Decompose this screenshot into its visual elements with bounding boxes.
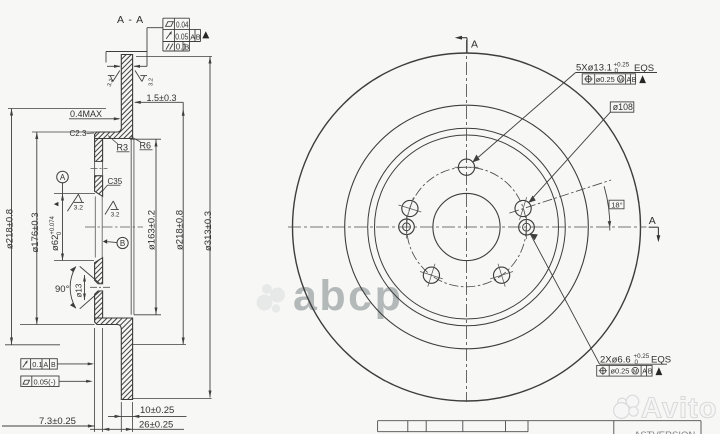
svg-text:A: A	[60, 173, 66, 182]
svg-text:26±0.25: 26±0.25	[139, 419, 173, 430]
svg-text:A: A	[649, 215, 656, 227]
svg-text:R3: R3	[117, 143, 129, 153]
svg-text:abcp: abcp	[293, 272, 403, 320]
svg-text:ø0.25: ø0.25	[596, 75, 615, 84]
svg-text:A: A	[642, 369, 647, 376]
svg-text:ASTVERSION: ASTVERSION	[634, 430, 695, 434]
svg-text:ø13: ø13	[75, 283, 84, 297]
svg-text:3.2: 3.2	[111, 212, 120, 219]
svg-text:ø0.25: ø0.25	[611, 367, 630, 376]
svg-text:B: B	[196, 32, 201, 41]
svg-text:0: 0	[635, 359, 639, 366]
svg-text:5Xø13.1: 5Xø13.1	[576, 63, 612, 74]
svg-text:ø163±0.2: ø163±0.2	[147, 210, 158, 250]
svg-text:0.04: 0.04	[176, 20, 189, 29]
svg-text:ø218±0.8: ø218±0.8	[5, 209, 16, 249]
svg-text:1.5±0.3: 1.5±0.3	[147, 93, 177, 103]
svg-text:7.3±0.25: 7.3±0.25	[39, 416, 76, 427]
svg-text:18°: 18°	[611, 200, 622, 209]
svg-text:0.4MAX: 0.4MAX	[70, 109, 102, 119]
svg-text:90°: 90°	[55, 284, 70, 295]
svg-text:0.1: 0.1	[32, 360, 42, 369]
svg-text:3.2: 3.2	[74, 205, 84, 212]
svg-text:C35: C35	[108, 177, 123, 186]
svg-text:M: M	[633, 369, 638, 375]
svg-text:ø108: ø108	[613, 102, 633, 112]
svg-text:EQS: EQS	[651, 355, 671, 366]
svg-text:B: B	[51, 362, 56, 369]
svg-text:B: B	[120, 239, 125, 248]
svg-text:B: B	[632, 77, 637, 84]
svg-text:ø176±0.3: ø176±0.3	[30, 212, 41, 252]
svg-text:R6: R6	[140, 141, 152, 151]
svg-text:10±0.25: 10±0.25	[140, 405, 174, 416]
svg-text:A: A	[190, 32, 195, 41]
svg-text:A: A	[44, 362, 49, 369]
svg-text:M: M	[618, 77, 623, 83]
svg-text:2Xø6.6: 2Xø6.6	[600, 354, 631, 365]
svg-text:3.2: 3.2	[149, 78, 155, 86]
svg-text:EQS: EQS	[634, 63, 654, 74]
svg-text:ø218±0.8: ø218±0.8	[175, 210, 186, 250]
svg-text:0.05(-): 0.05(-)	[34, 377, 57, 386]
svg-text:B: B	[184, 43, 189, 52]
svg-text:A: A	[471, 39, 478, 51]
svg-text:A - A: A - A	[117, 14, 144, 26]
svg-text:ø313±0.3: ø313±0.3	[203, 211, 214, 251]
svg-text:C2.3: C2.3	[70, 129, 87, 138]
svg-text:Avito: Avito	[641, 393, 717, 425]
svg-text:B: B	[648, 369, 653, 376]
svg-text:0: 0	[615, 67, 619, 74]
svg-text:0.05: 0.05	[175, 32, 188, 41]
